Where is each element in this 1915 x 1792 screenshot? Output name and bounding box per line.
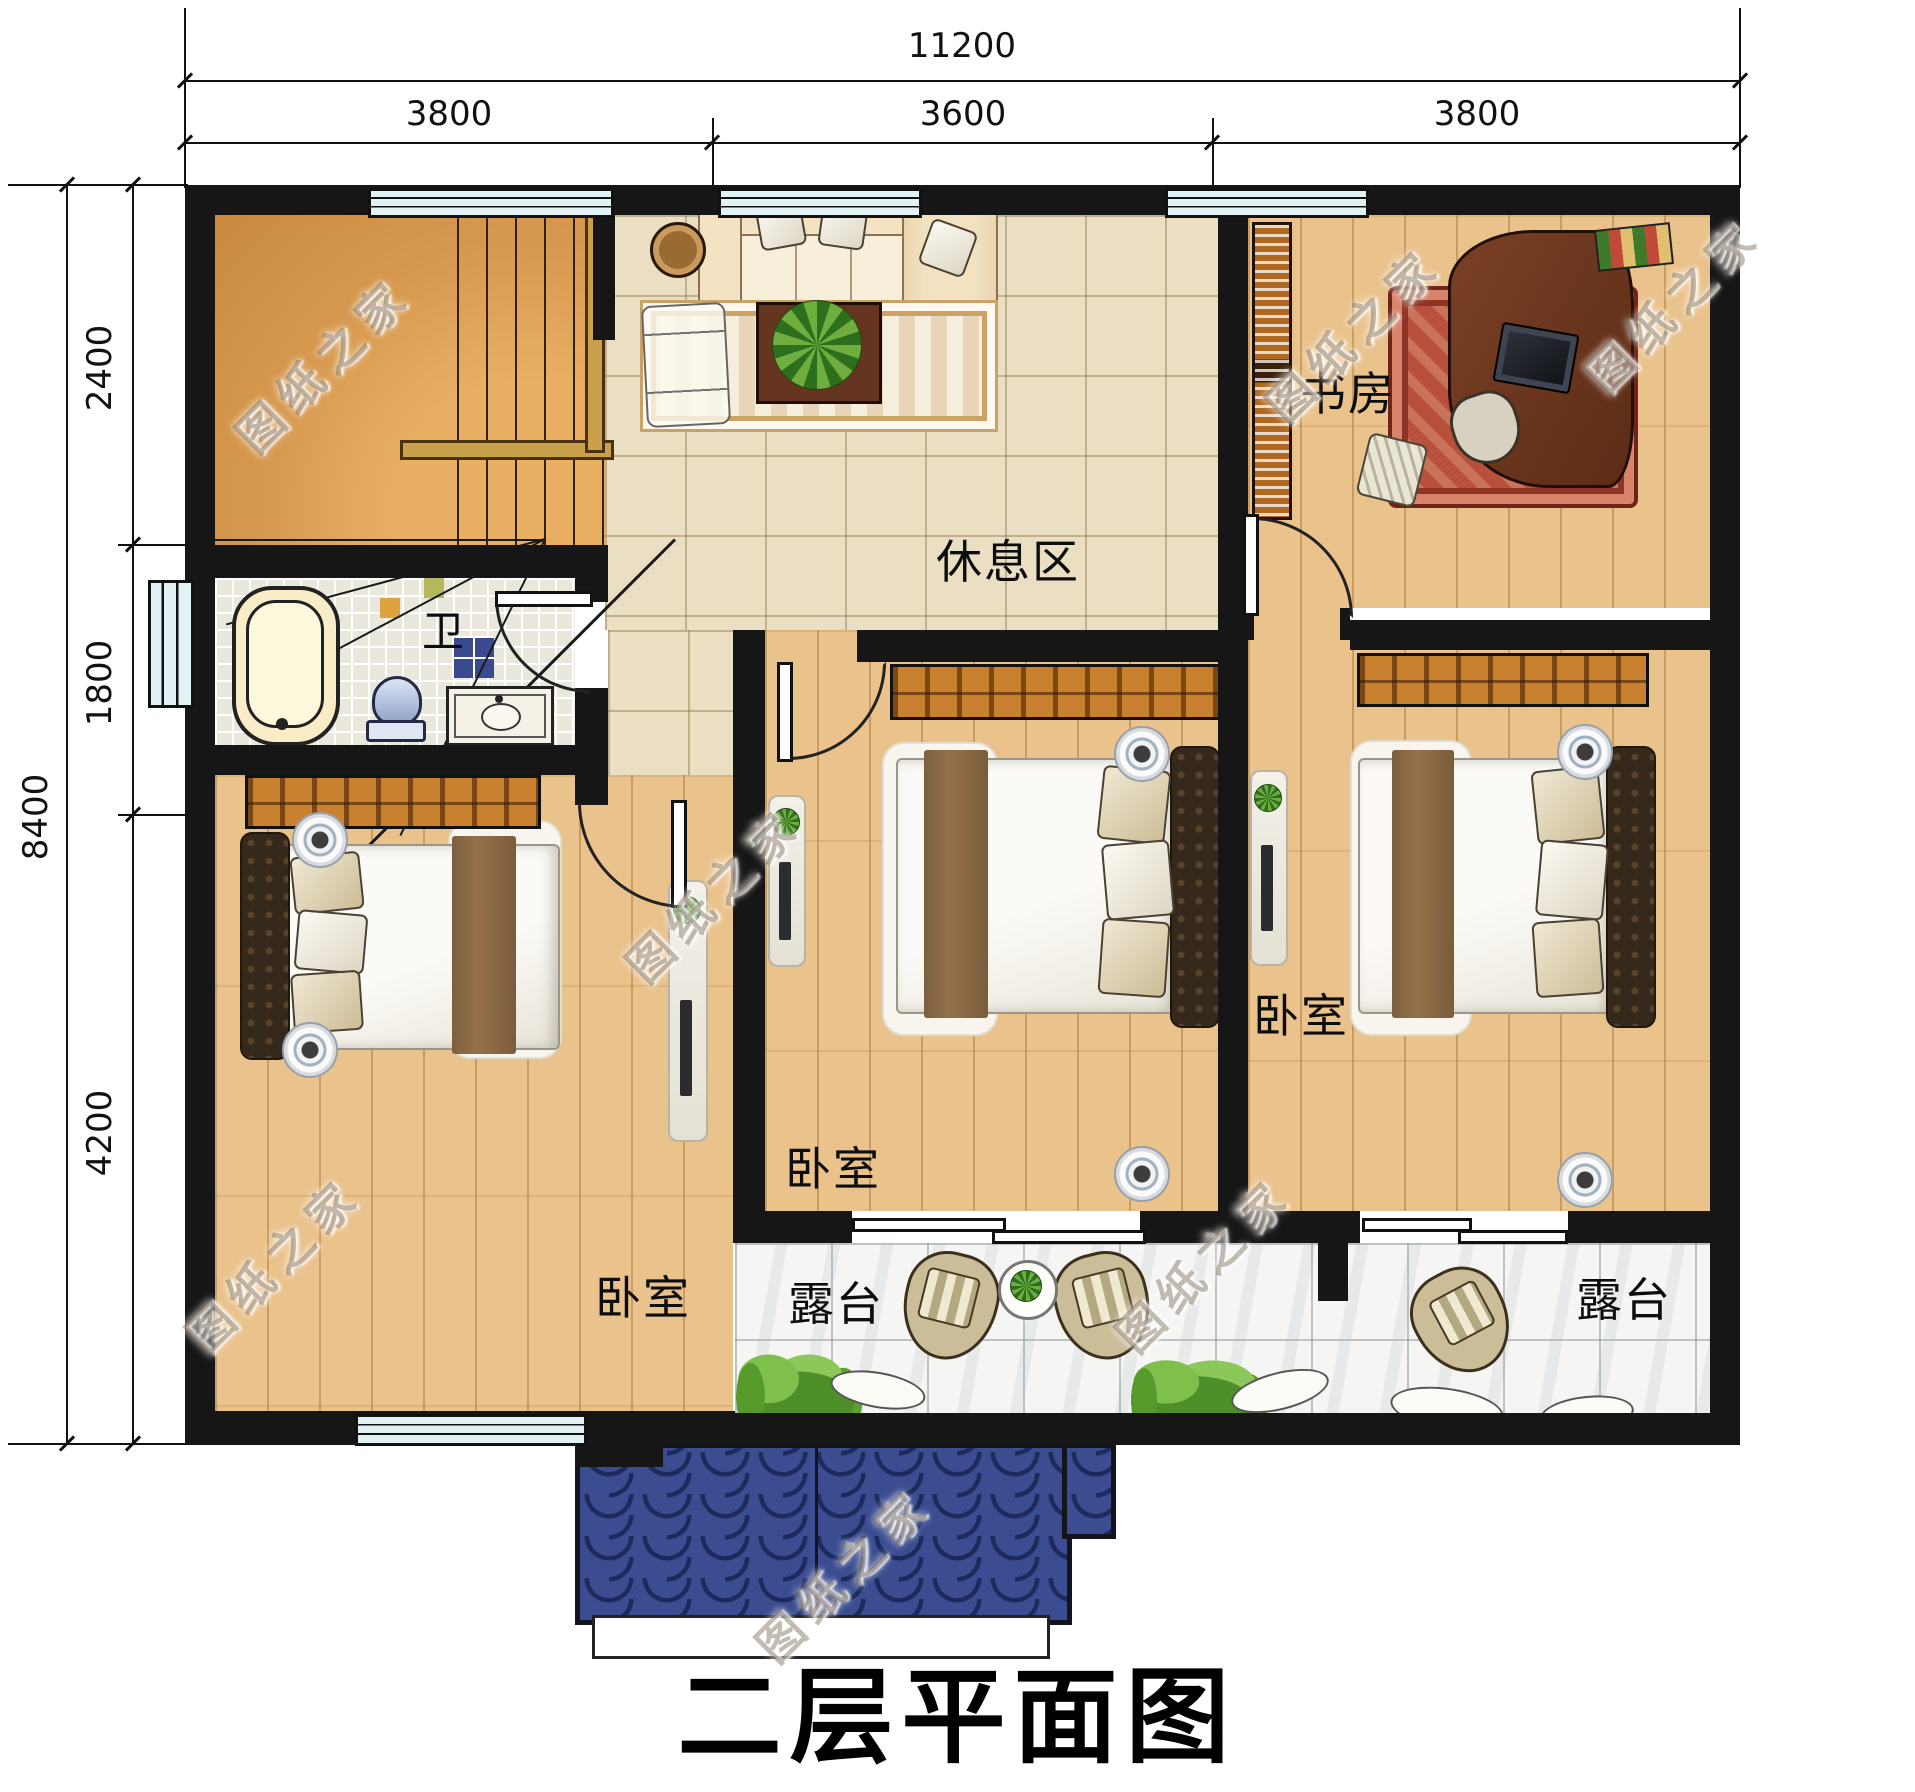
wall-terrace-divider [1318,1243,1348,1301]
window-study [1165,188,1369,218]
bed-runner-right [1392,750,1454,1018]
wall-bedroom-middle-right [1218,640,1248,1213]
label-terrace-left: 露台 [788,1268,884,1334]
bed-pillow [1097,918,1170,999]
terrace-slider-right-pane [1362,1218,1472,1232]
dim-left-total: 8400 [16,732,56,902]
downlight-icon [1557,1152,1613,1208]
bathtub [232,586,340,746]
window-rest-area [718,188,922,218]
wall-outer-left [185,185,215,1445]
bed-pillow [1535,839,1609,921]
sink-basin [481,703,521,731]
wall-corridor-bedroom-middle [733,630,765,1213]
stairs-handrail-horizontal [400,440,614,460]
label-terrace-right: 露台 [1576,1264,1672,1330]
downlight-icon [1557,724,1613,780]
window-bedroom-left [355,1414,587,1446]
dim-top-seg-1: 3800 [374,94,524,134]
stairs-landing-line [215,539,545,541]
dim-left-seg-3: 4200 [80,1053,120,1213]
study-door-leaf [1243,514,1259,616]
stairs-treads-lower [430,456,605,545]
armchair-sketch [641,302,731,428]
downlight-icon [292,812,348,868]
side-table [650,222,706,278]
terrace-slider-left-pane [992,1230,1146,1244]
downlight-icon [1114,726,1170,782]
wardrobe-bedroom-right [1357,653,1649,707]
porch-roof-step [1062,1443,1116,1539]
wall-bath-right-lower [575,688,608,805]
stairs-treads-upper [430,215,605,443]
bathtub-inner [246,600,324,728]
wardrobe-bedroom-left [245,775,541,829]
sink-faucet-icon [495,695,503,703]
bed-pillow [1531,918,1604,999]
wall-bedrooms-bottom-1 [733,1211,852,1243]
plant-icon [1254,784,1282,812]
tv-icon [680,1000,692,1096]
terrace-slider-left-pane [852,1218,1006,1232]
tv-icon [1261,845,1273,931]
dim-left-seg-2: 1800 [80,603,120,763]
dim-top-seg-3: 3800 [1402,94,1552,134]
wall-bedrooms-bottom-3 [1568,1211,1710,1243]
wall-stairs-right-stub [593,215,615,340]
bed-pillow [294,909,369,975]
wall-rest-bedroom-middle [857,630,1220,662]
window-bath [148,580,194,708]
floorplan-sheet: 11200 3800 3600 3800 8400 2400 1800 4200 [0,0,1915,1792]
bed-headboard-middle [1170,746,1220,1028]
plant-icon [1010,1270,1042,1302]
bed-pillow [1101,839,1175,921]
bed-headboard-left [240,832,290,1060]
plant-icon [772,300,862,390]
label-bedroom-middle: 卧室 [785,1133,881,1199]
label-bath: 卫 [422,598,466,659]
downlight-icon [282,1022,338,1078]
toilet [366,676,422,740]
wall-outer-right [1710,185,1740,1445]
bedroom-middle-door-leaf [777,662,793,762]
wall-bedroom-left-corner-stub [575,1411,663,1467]
dim-top-seg-2: 3600 [888,94,1038,134]
drawing-title: 二层平面图 [0,1632,1915,1783]
bed-headboard-right [1606,746,1656,1028]
bathtub-faucet-icon [276,718,288,730]
wall-terrace-bottom [735,1413,1710,1445]
terrace-slider-right-pane [1458,1230,1568,1244]
dim-left-seg-1: 2400 [80,288,120,448]
toilet-tank [366,720,426,742]
sink-vanity [446,686,554,746]
bath-door-leaf [495,591,593,607]
mosaic-accent-orange [380,598,400,618]
bed-runner-left [452,836,516,1054]
window-stairs [368,188,614,218]
tv-icon [779,862,791,940]
label-bedroom-left: 卧室 [595,1262,691,1328]
wall-stairs-bath [185,545,605,578]
label-rest-area: 休息区 [936,526,1080,592]
wall-bedroom-right-top [1350,620,1710,650]
downlight-icon [1114,1146,1170,1202]
dim-top-total: 11200 [877,26,1047,66]
wardrobe-bedroom-middle [890,664,1224,720]
bed-runner-middle [924,750,988,1018]
toilet-bowl [372,676,422,726]
label-bedroom-right: 卧室 [1253,980,1349,1046]
wall-bath-bottom [185,745,575,775]
